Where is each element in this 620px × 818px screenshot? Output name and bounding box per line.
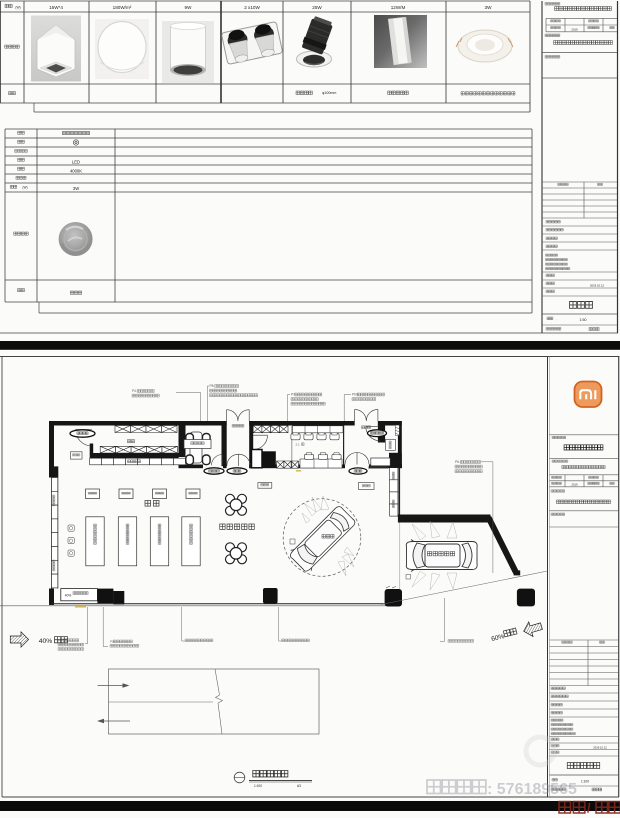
svg-text:2019.10.12: 2019.10.12	[590, 283, 604, 287]
svg-text:(W): (W)	[15, 5, 20, 9]
svg-text:1:100: 1:100	[254, 784, 262, 788]
svg-text:1:50: 1:50	[580, 318, 587, 322]
svg-text:12W/M: 12W/M	[391, 5, 406, 10]
svg-text:2019.10.12: 2019.10.12	[593, 746, 607, 750]
svg-text:A3: A3	[297, 784, 301, 788]
svg-text:1:100: 1:100	[581, 780, 589, 784]
svg-text:P4:: P4:	[132, 389, 137, 393]
svg-text:P6:: P6:	[455, 460, 460, 464]
svg-text:180W/m²: 180W/m²	[113, 5, 132, 10]
svg-text:9W: 9W	[185, 5, 193, 10]
svg-text:(W): (W)	[22, 185, 27, 189]
svg-text:4000K: 4000K	[70, 168, 82, 173]
svg-text:: 576189565: : 576189565	[487, 781, 577, 798]
svg-text:P8:: P8:	[210, 384, 215, 388]
svg-text:LED: LED	[72, 159, 80, 164]
svg-text:/: /	[587, 802, 591, 816]
svg-text:15W*4: 15W*4	[49, 5, 63, 10]
svg-text:2019: 2019	[572, 483, 578, 487]
svg-text:40%: 40%	[39, 638, 53, 645]
svg-text:2 x10W: 2 x10W	[244, 5, 260, 10]
svg-text:25W: 25W	[312, 5, 322, 10]
svg-text:φ100mm: φ100mm	[322, 91, 336, 95]
svg-text:2.1: 2.1	[296, 443, 301, 447]
svg-text:3W: 3W	[73, 186, 79, 191]
svg-text:40%: 40%	[65, 594, 72, 598]
svg-text:3W: 3W	[485, 5, 493, 10]
svg-text:2019: 2019	[571, 27, 578, 31]
